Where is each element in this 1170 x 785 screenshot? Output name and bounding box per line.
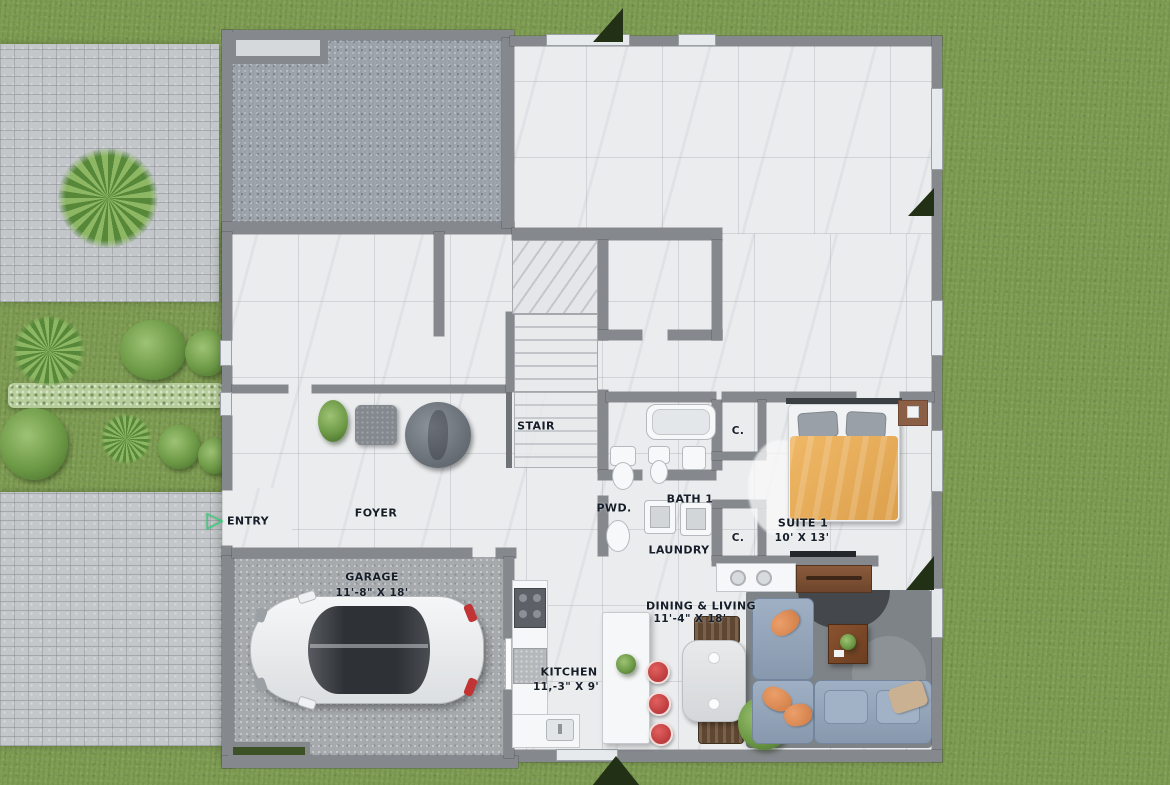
bed-duvet-orange — [790, 436, 898, 520]
wall-interior — [312, 385, 506, 393]
car-glass-roof — [308, 606, 430, 694]
kitchen-faucet — [558, 724, 562, 734]
plate — [708, 698, 720, 710]
burner — [519, 610, 527, 618]
wall-interior — [598, 390, 608, 472]
palm-plant — [58, 148, 158, 248]
palm-plant — [12, 316, 86, 386]
wall-interior — [232, 385, 288, 393]
garage-planter-strip — [228, 742, 310, 760]
bar-stool-red — [647, 692, 671, 716]
leafy-plant — [120, 320, 186, 380]
washer-lid — [650, 506, 670, 528]
window — [931, 588, 943, 638]
room-dims-dining-living: 11'-4" X 18' — [654, 613, 727, 625]
room-label-dining-living: DINING & LIVING — [646, 600, 756, 613]
bed-pillow — [845, 411, 886, 439]
nightstand-lamp — [907, 406, 919, 418]
entry-arrow-icon: ▷ — [202, 508, 228, 534]
wall-exterior-left — [222, 416, 232, 490]
window — [931, 88, 943, 170]
room-label-garage: GARAGE — [345, 571, 398, 584]
wall-interior — [434, 232, 444, 336]
wall-interior — [660, 470, 716, 480]
bathtub-basin — [652, 409, 710, 435]
window — [678, 34, 716, 46]
car — [250, 596, 484, 704]
burner — [533, 594, 541, 602]
cooktop — [514, 588, 546, 628]
room-label-bath1: BATH 1 — [667, 493, 714, 506]
palm-plant — [100, 414, 152, 464]
sofa-cushion — [824, 690, 868, 724]
wall-interior — [606, 392, 716, 402]
window — [931, 430, 943, 492]
leafy-plant — [0, 408, 68, 480]
window — [220, 392, 232, 416]
coffee-table-card — [834, 650, 844, 657]
roof-shadow-triangle — [593, 8, 623, 42]
stair-winder-treads — [512, 240, 598, 314]
wall-garage-top — [232, 548, 472, 558]
room-label-entry: ENTRY — [227, 515, 269, 528]
sink-pwd — [606, 520, 630, 552]
wall-interior — [712, 505, 722, 560]
toilet-bowl-pwd — [612, 462, 634, 490]
room-label-pwd: PWD. — [596, 502, 631, 515]
tv-panel — [790, 551, 856, 557]
room-label-suite1: SUITE 1 — [778, 517, 828, 530]
room-label-closet1: C. — [732, 425, 745, 437]
island-plant — [616, 654, 636, 674]
wall — [222, 222, 514, 234]
bar-stool-red — [646, 660, 670, 684]
ottoman — [355, 405, 397, 445]
console-sink — [730, 570, 746, 586]
patio-planter-box — [228, 32, 328, 64]
wall-stair — [506, 312, 514, 392]
stair-upper-flight — [514, 314, 598, 392]
wall-exterior-left — [222, 232, 232, 340]
sink-bath1 — [682, 446, 706, 470]
roof-shadow-triangle — [592, 756, 640, 785]
coffee-table-plant — [840, 634, 856, 650]
floor-plan-render: ▷ ENTRY FOYER STAIR PWD. BATH 1 LAUNDRY … — [0, 0, 1170, 785]
wall-interior — [598, 240, 608, 340]
house-floor-upper-room — [510, 38, 934, 234]
room-label-stair: STAIR — [517, 420, 555, 433]
sideboard-handle — [806, 576, 862, 580]
room-dims-kitchen: 11,-3" X 9' — [533, 681, 599, 693]
toilet-bowl-bath1 — [650, 460, 668, 484]
window — [931, 300, 943, 356]
room-label-closet2: C. — [732, 532, 745, 544]
roof-shadow-triangle — [906, 556, 934, 590]
covered-patio-floor — [230, 38, 504, 224]
plate — [708, 652, 720, 664]
door-leaf — [505, 638, 512, 690]
wall-exterior-left — [222, 366, 232, 392]
dryer-lid — [686, 508, 706, 530]
burner — [519, 594, 527, 602]
wall-interior — [712, 240, 722, 340]
room-label-laundry: LAUNDRY — [648, 544, 709, 557]
room-label-foyer: FOYER — [355, 507, 397, 520]
bar-stool-red — [649, 722, 673, 746]
hedge-row — [8, 383, 224, 408]
potted-plant — [318, 400, 348, 442]
room-label-kitchen: KITCHEN — [541, 666, 598, 679]
car-roof-seam — [310, 644, 428, 648]
window — [220, 340, 232, 366]
wall — [502, 38, 514, 228]
bush-plant — [158, 425, 200, 469]
wall-interior — [512, 228, 722, 240]
kitchen-island — [602, 612, 650, 744]
paver-driveway — [0, 492, 223, 746]
room-dims-garage: 11'-8" X 18' — [336, 587, 409, 599]
room-dims-suite1: 10' X 13' — [775, 532, 830, 544]
burner — [533, 610, 541, 618]
console-sink — [756, 570, 772, 586]
stair-railing — [506, 392, 512, 468]
wall-interior — [598, 330, 642, 340]
wall-garage-left — [222, 556, 234, 768]
roof-shadow-triangle — [908, 188, 934, 216]
